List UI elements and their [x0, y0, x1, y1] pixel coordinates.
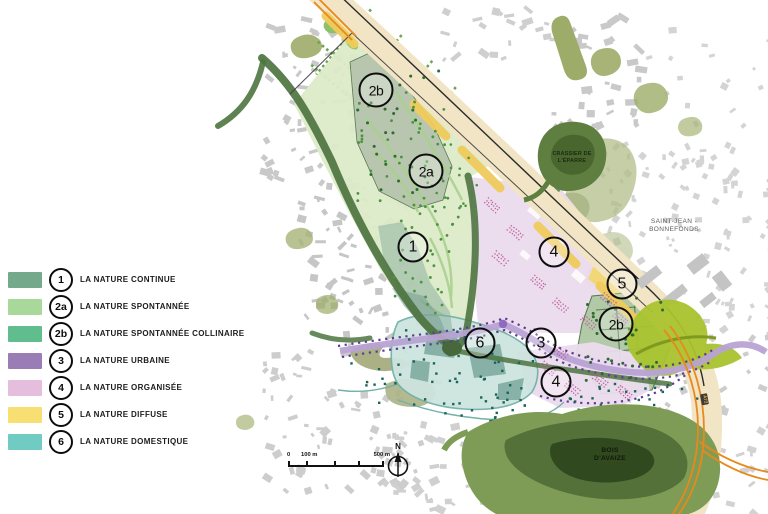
scale-mid: 100 m	[301, 452, 317, 458]
zone-label-3: 3	[526, 328, 557, 359]
legend-item-5: 5 LA NATURE DIFFUSE	[8, 401, 258, 428]
legend-number: 2b	[49, 322, 73, 346]
place-label-bois-avaize: BOIS D'AVAIZE	[574, 447, 646, 463]
zones-layer	[294, 32, 670, 420]
legend-label: LA NATURE URBAINE	[80, 356, 170, 365]
legend-item-4: 4 LA NATURE ORGANISÉE	[8, 374, 258, 401]
legend-item-1: 1 LA NATURE CONTINUE	[8, 266, 258, 293]
legend-swatch	[8, 353, 42, 369]
zone-label-2a: 2a	[409, 154, 444, 189]
legend-number: 2a	[49, 295, 73, 319]
legend-swatch	[8, 380, 42, 396]
zone-label-6: 6	[465, 328, 496, 359]
place-label-line: CRASSIER DE	[543, 151, 601, 158]
legend-swatch	[8, 407, 42, 423]
legend-swatch	[8, 272, 42, 288]
legend-number: 5	[49, 403, 73, 427]
legend-number: 6	[49, 430, 73, 454]
place-label-line: SAINT-JEAN -	[628, 218, 720, 226]
legend-label: LA NATURE SPONTANNÉE	[80, 302, 190, 311]
north-arrow: N	[384, 440, 412, 484]
zone-label-5: 5	[607, 269, 638, 300]
zone-label-4-upper: 4	[539, 237, 570, 268]
legend-label: LA NATURE ORGANISÉE	[80, 383, 182, 392]
zone-label-2b-top: 2b	[359, 73, 394, 108]
north-label: N	[395, 442, 401, 451]
legend: 1 LA NATURE CONTINUE 2a LA NATURE SPONTA…	[8, 266, 258, 455]
legend-number: 3	[49, 349, 73, 373]
legend-swatch	[8, 434, 42, 450]
legend-item-2a: 2a LA NATURE SPONTANNÉE	[8, 293, 258, 320]
place-label-saint-jean-bonnefonds: SAINT-JEAN - BONNEFONDS	[628, 218, 720, 234]
place-label-line: L'ÉPARRE	[543, 158, 601, 165]
place-label-line: D'AVAIZE	[574, 455, 646, 463]
place-label-crassier: CRASSIER DE L'ÉPARRE	[543, 151, 601, 165]
scale-start: 0	[287, 452, 290, 458]
zone-label-4-lower: 4	[541, 367, 572, 398]
legend-item-2b: 2b LA NATURE SPONTANNÉE COLLINAIRE	[8, 320, 258, 347]
scale-line	[288, 465, 384, 467]
legend-number: 4	[49, 376, 73, 400]
zone-label-2b-lower: 2b	[599, 307, 634, 342]
legend-label: LA NATURE CONTINUE	[80, 275, 176, 284]
legend-label: LA NATURE DOMESTIQUE	[80, 437, 188, 446]
legend-swatch	[8, 299, 42, 315]
legend-item-6: 6 LA NATURE DOMESTIQUE	[8, 428, 258, 455]
place-label-line: BOIS	[574, 447, 646, 455]
zone-label-1: 1	[398, 232, 429, 263]
legend-label: LA NATURE SPONTANNÉE COLLINAIRE	[80, 329, 244, 338]
map-page: 1 LA NATURE CONTINUE 2a LA NATURE SPONTA…	[0, 0, 768, 514]
scale-bar: 0 100 m 500 m	[288, 452, 386, 472]
legend-number: 1	[49, 268, 73, 292]
legend-item-3: 3 LA NATURE URBAINE	[8, 347, 258, 374]
legend-label: LA NATURE DIFFUSE	[80, 410, 168, 419]
purple-node	[499, 320, 507, 328]
legend-swatch	[8, 326, 42, 342]
place-label-line: BONNEFONDS	[628, 226, 720, 234]
